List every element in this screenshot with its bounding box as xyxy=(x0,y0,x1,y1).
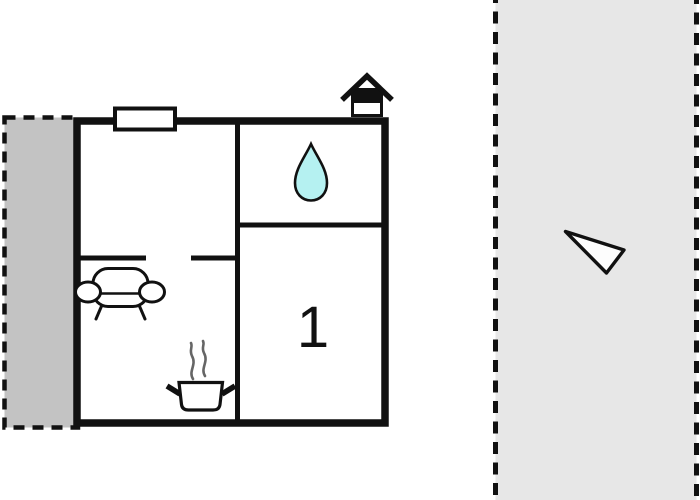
room-1-label: 1 xyxy=(297,295,329,360)
floorplan-canvas: 1 xyxy=(0,0,700,500)
sofa-armrest-left xyxy=(76,282,101,302)
window-marker xyxy=(115,109,175,130)
pot-body xyxy=(179,383,223,411)
floorplan-page: 1 xyxy=(0,0,700,500)
sofa-armrest-right xyxy=(140,282,165,302)
house-icon xyxy=(344,76,390,116)
left-terrace-area xyxy=(5,118,79,428)
